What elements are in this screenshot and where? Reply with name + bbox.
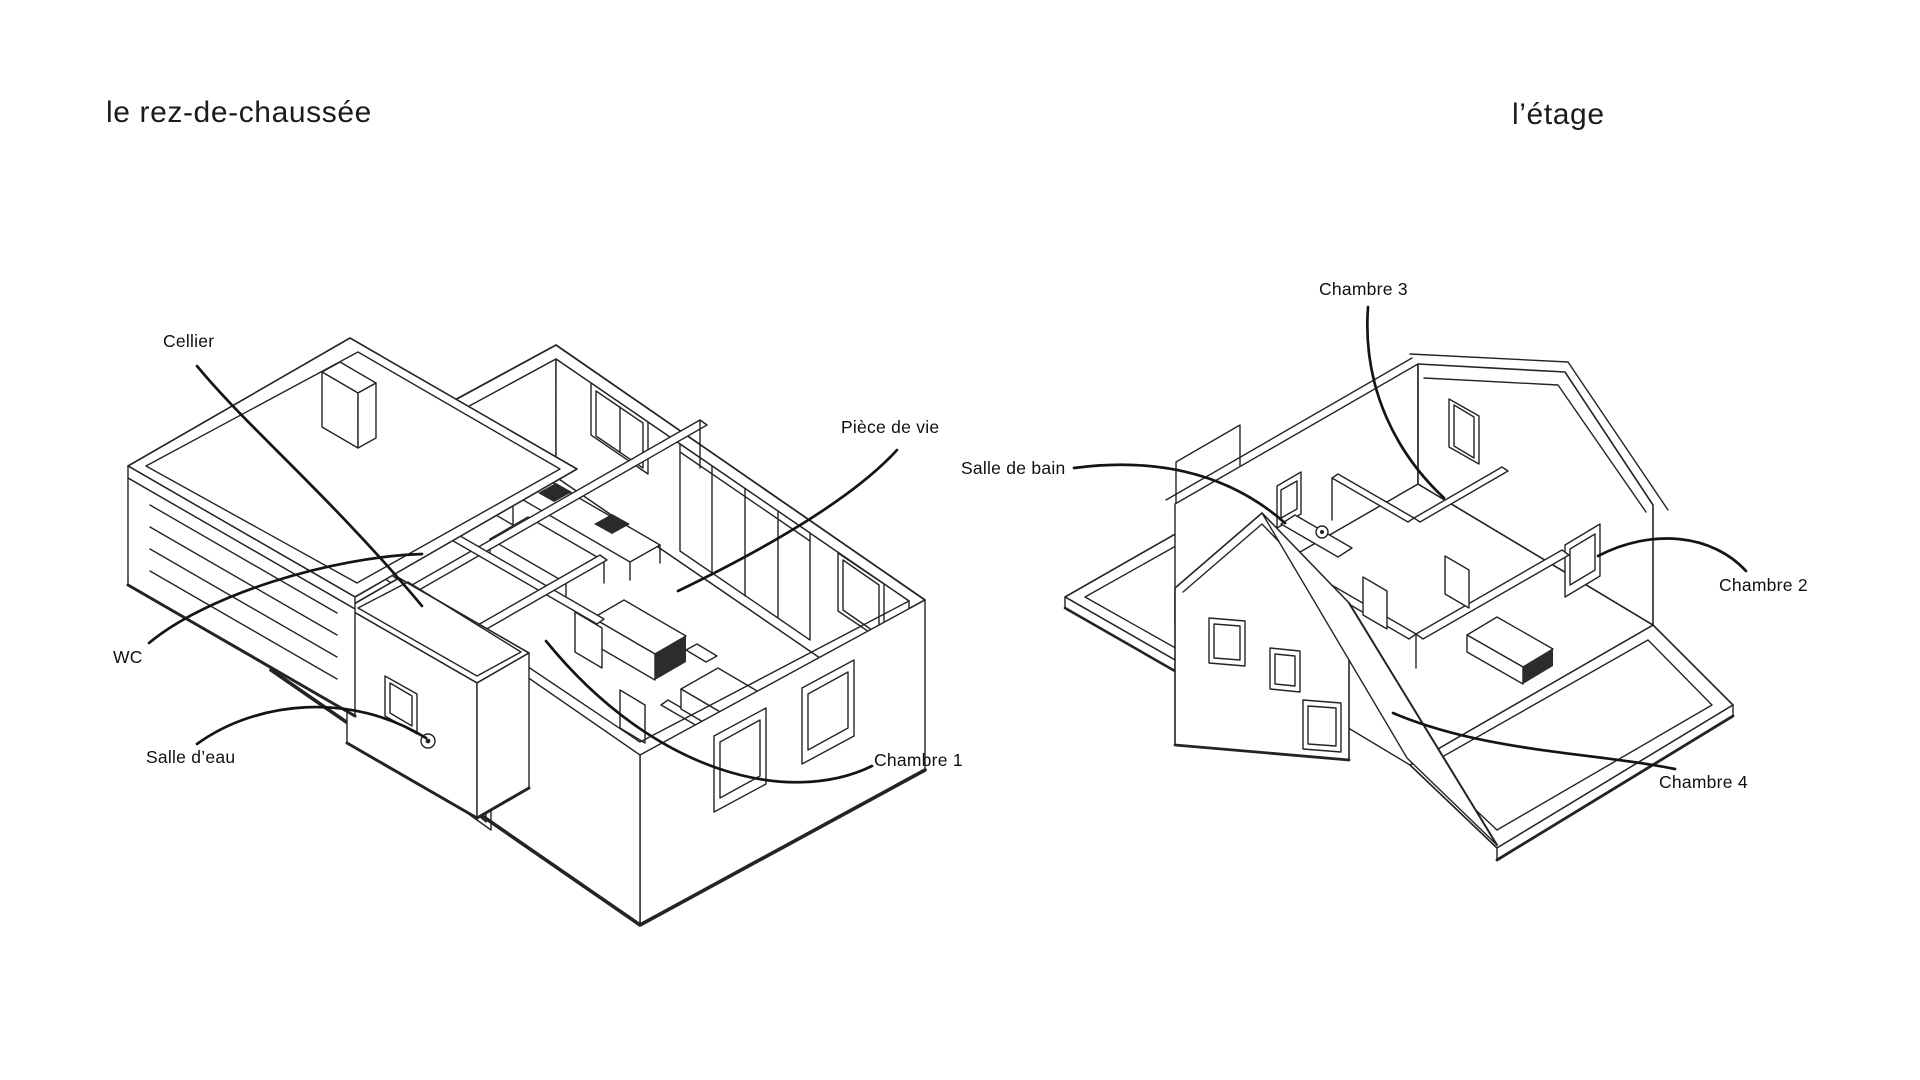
label-cellier: Cellier: [163, 331, 214, 352]
label-piece-de-vie: Pièce de vie: [841, 417, 939, 438]
upper-floor-house: [1065, 354, 1733, 860]
page: le rez-de-chaussée l’étage Cellier Pièce…: [0, 0, 1920, 1080]
label-salle-de-bain: Salle de bain: [961, 458, 1065, 479]
facade-window-3: [1303, 700, 1341, 752]
label-chambre-3: Chambre 3: [1319, 279, 1408, 300]
label-salle-deau: Salle d’eau: [146, 747, 235, 768]
label-chambre-4: Chambre 4: [1659, 772, 1748, 793]
upper-floor-title: l’étage: [1512, 98, 1605, 132]
ground-floor-house: [128, 338, 925, 925]
label-chambre-1: Chambre 1: [874, 750, 963, 771]
label-wc: WC: [113, 647, 143, 668]
floorplan-drawings: [0, 0, 1920, 1080]
facade-window-1: [1209, 618, 1245, 666]
label-chambre-2: Chambre 2: [1719, 575, 1808, 596]
ground-floor-title: le rez-de-chaussée: [106, 96, 372, 130]
facade-window-2: [1270, 648, 1300, 692]
